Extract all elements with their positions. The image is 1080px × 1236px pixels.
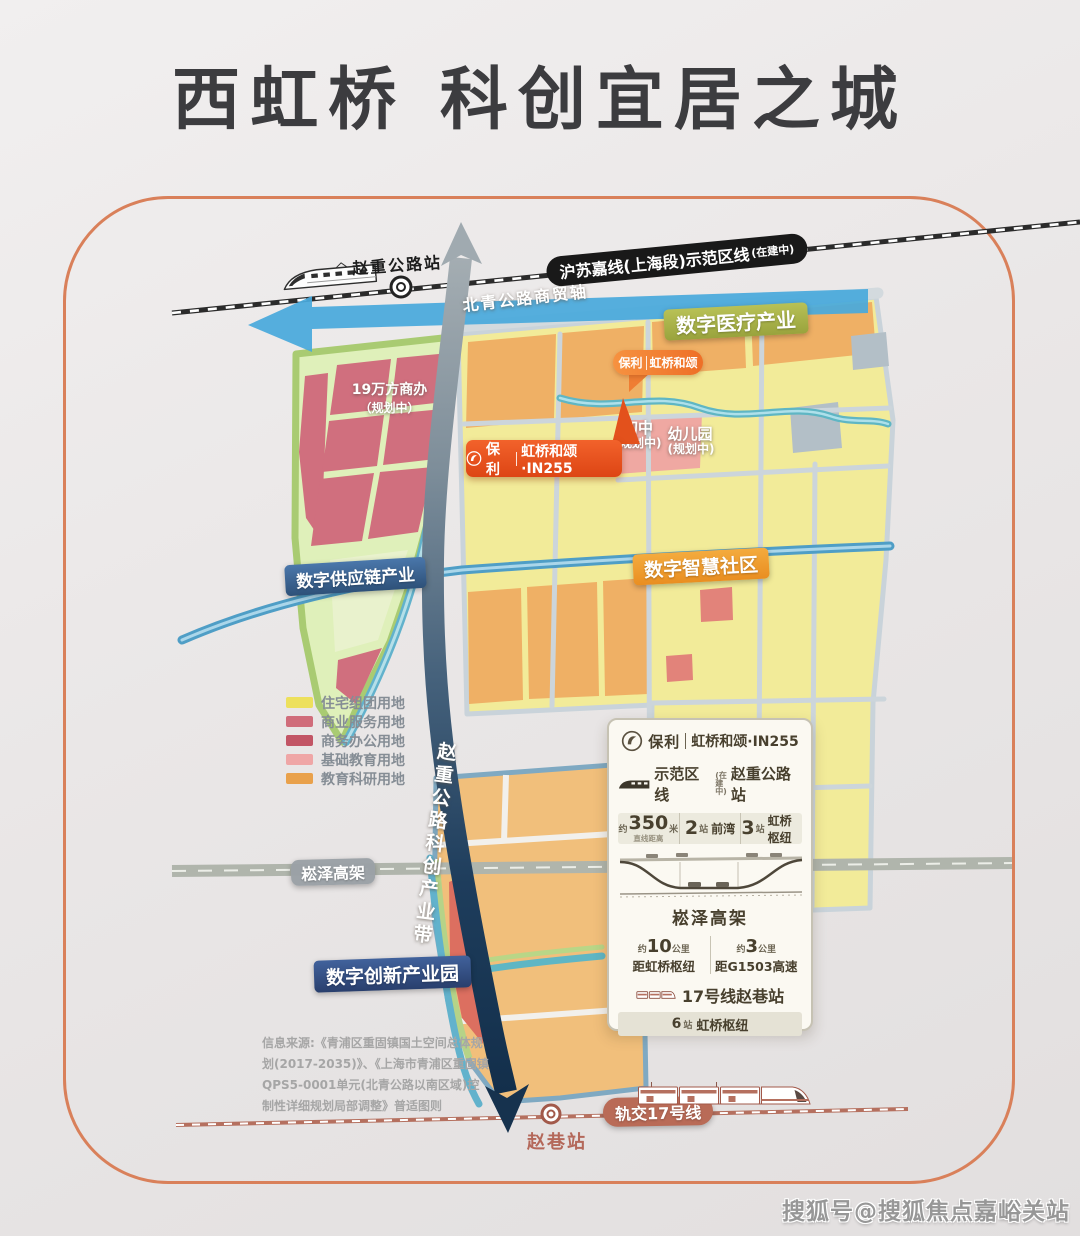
distance-unit: 公里 — [672, 945, 690, 955]
kindergarten-parcel-sub: (规划中) — [655, 440, 727, 457]
distance-destination: G1503高速 — [727, 959, 797, 974]
metro-train-icon — [636, 989, 676, 1001]
source-note: 信息来源:《青浦区重固镇国土空间总体规 划(2017-2035)》、《上海市青浦… — [262, 1033, 514, 1117]
legend-label: 住宅组团用地 — [321, 693, 405, 713]
rail-line-name: 示范区线 — [654, 763, 711, 805]
distance-number: 3 — [745, 936, 758, 957]
stat-qianwan: 2 站 前湾 — [679, 813, 741, 844]
stat-unit: 站 — [756, 822, 765, 835]
legend-item: 住宅组团用地 — [286, 696, 405, 709]
legend-swatch — [286, 773, 313, 784]
legend-swatch — [286, 735, 313, 746]
watermark: 搜狐号@搜狐焦点嘉峪关站 — [782, 1192, 1070, 1226]
stat-number: 350 — [629, 814, 669, 833]
source-line: 划(2017-2035)》、《上海市青浦区重固镇 — [262, 1054, 514, 1075]
distance-destination: 虹桥枢纽 — [645, 959, 695, 974]
legend-item: 基础教育用地 — [286, 753, 405, 766]
stat-number: 3 — [741, 819, 754, 838]
divider — [685, 733, 686, 749]
legend-label: 商务办公用地 — [321, 731, 405, 751]
stat-hongqiao: 3 站 虹桥枢纽 — [740, 813, 802, 844]
source-line: 信息来源:《青浦区重固镇国土空间总体规 — [262, 1033, 514, 1054]
note-destination: 虹桥枢纽 — [696, 1015, 748, 1034]
brand-name: 保利 — [486, 439, 512, 479]
zone-innovation-label: 数字创新产业园 — [313, 955, 471, 992]
rail-station-name: 赵重公路站 — [731, 763, 802, 805]
project-bubble-large: 保利 虹桥和颂·IN255 — [466, 440, 622, 477]
brand-name: 保利 — [648, 731, 680, 752]
card-distance-row: 约10公里 距虹桥枢纽 约3公里 距G1503高速 — [618, 936, 802, 974]
note-unit: 站 — [683, 1018, 692, 1031]
legend-swatch — [286, 697, 313, 708]
legend-item: 商业服务用地 — [286, 715, 405, 728]
train-icon — [618, 778, 650, 791]
legend-item: 教育科研用地 — [286, 772, 405, 785]
legend-item: 商务办公用地 — [286, 734, 405, 747]
brand-name: 保利 — [618, 354, 642, 371]
songze-road-label: 崧泽高架 — [291, 858, 376, 886]
card-rail-row: 示范区线 (在建中) 赵重公路站 — [618, 763, 802, 805]
card-header: 保利 虹桥和颂·IN255 — [618, 730, 802, 752]
card-stats-row: 约 350 直线距离 米 2 站 前湾 3 站 虹桥枢纽 — [618, 813, 802, 844]
metro-train-icon-large — [636, 1078, 812, 1114]
office-parcel-label: 19万方商办 — [342, 379, 437, 399]
poster: 西虹桥 科创宜居之城 — [0, 0, 1080, 1236]
distance-dest-prefix: 距 — [632, 959, 645, 974]
office-parcel-sub: （规划中） — [342, 399, 437, 416]
distance-unit: 公里 — [758, 945, 776, 955]
source-line: 制性详细规划局部调整》普适图则 — [262, 1096, 514, 1117]
card-road-name: 崧泽高架 — [618, 904, 802, 929]
distance-prefix: 约 — [638, 945, 647, 955]
zhaoxiang-station-marker — [542, 1105, 560, 1123]
hsj-line-status: (在建中) — [751, 241, 795, 261]
divider — [646, 356, 647, 370]
stat-prefix: 约 — [618, 822, 627, 835]
legend-swatch — [286, 716, 313, 727]
stat-stack: 350 直线距离 — [629, 814, 669, 843]
project-bubble-small-tail — [629, 373, 650, 392]
legend-swatch — [286, 754, 313, 765]
stat-number: 2 — [685, 819, 698, 838]
divider — [516, 452, 517, 466]
land-use-legend: 住宅组团用地 商业服务用地 商务办公用地 基础教育用地 教育科研用地 — [286, 696, 405, 785]
zhaozhong-station-marker — [391, 277, 411, 297]
stat-unit: 米 — [669, 822, 678, 835]
distance-hongqiao: 约10公里 距虹桥枢纽 — [618, 936, 710, 974]
project-name: 虹桥和颂·IN255 — [521, 441, 622, 477]
distance-dest-prefix: 距 — [715, 959, 728, 974]
distance-g1503: 约3公里 距G1503高速 — [710, 936, 803, 974]
card-metro-row: 17号线赵巷站 — [618, 983, 802, 1007]
project-bubble-small: 保利 虹桥和颂 — [613, 350, 703, 375]
legend-label: 基础教育用地 — [321, 750, 405, 770]
distance-number: 10 — [647, 936, 672, 957]
stat-subtext: 直线距离 — [633, 835, 663, 843]
legend-label: 教育科研用地 — [321, 769, 405, 789]
transit-info-card: 保利 虹桥和颂·IN255 示范区线 (在建中) 赵重公路站 约 350 直线距… — [607, 718, 813, 1031]
project-name: 虹桥和颂·IN255 — [691, 731, 798, 751]
planning-map — [0, 0, 1080, 1236]
stat-destination: 虹桥枢纽 — [768, 812, 802, 846]
source-line: QPS5-0001单元(北青公路以南区域)控 — [262, 1075, 514, 1096]
road-section-figure — [618, 850, 804, 898]
stat-unit: 站 — [699, 822, 708, 835]
rail-line-status: (在建中) — [715, 772, 727, 796]
legend-label: 商业服务用地 — [321, 712, 405, 732]
project-name: 虹桥和颂 — [650, 354, 698, 371]
project-bubble-large-tail — [612, 398, 640, 444]
metro-line-name: 17号线赵巷站 — [682, 983, 784, 1007]
poly-logo-icon — [466, 450, 482, 467]
card-metro-note: 6 站 虹桥枢纽 — [618, 1012, 802, 1036]
station-label-zhaoxiang: 赵巷站 — [527, 1128, 587, 1154]
poly-logo-icon — [621, 730, 643, 752]
stat-distance: 约 350 直线距离 米 — [618, 813, 679, 844]
stat-destination: 前湾 — [711, 820, 735, 837]
note-number: 6 — [672, 1016, 682, 1032]
